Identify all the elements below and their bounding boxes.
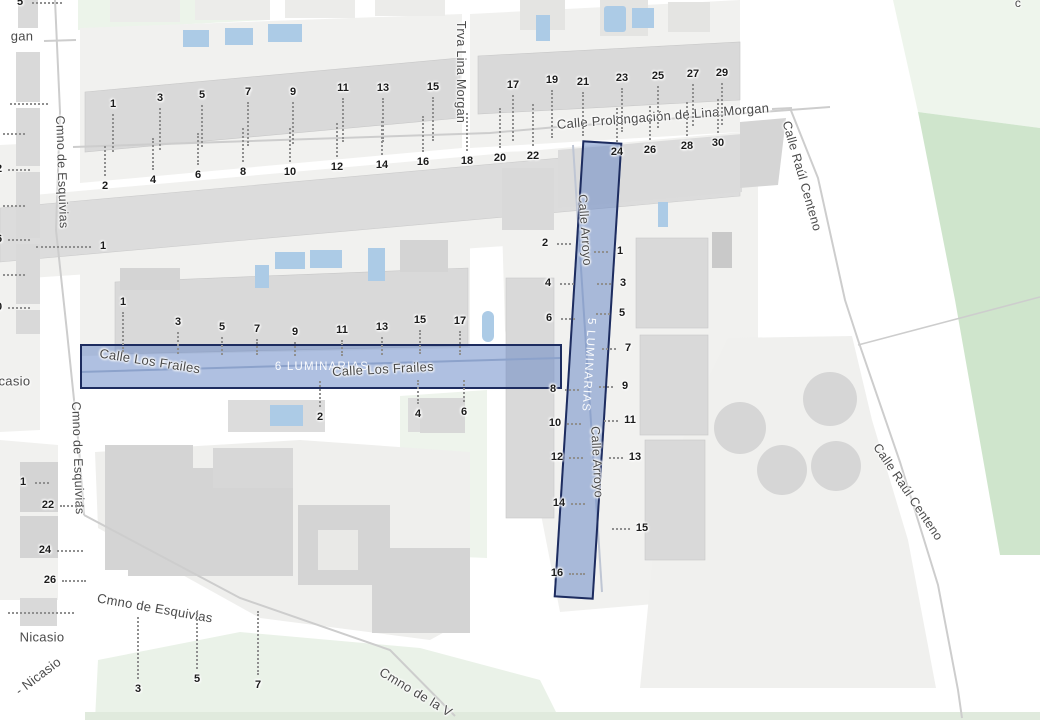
green-strip — [85, 712, 1040, 720]
green-area — [893, 0, 1040, 128]
green-area — [918, 112, 1040, 555]
map-canvas[interactable]: 6 LUMINARIAS 5 LUMINARIAS ganCmno de Esq… — [0, 0, 1040, 720]
building — [636, 238, 708, 328]
green-area — [95, 632, 560, 720]
highlight-calle-los-frailes[interactable]: 6 LUMINARIAS — [80, 344, 562, 389]
luminarias-label-arroyo: 5 LUMINARIAS — [579, 318, 597, 413]
luminarias-label-frailes: 6 LUMINARIAS — [275, 361, 369, 373]
